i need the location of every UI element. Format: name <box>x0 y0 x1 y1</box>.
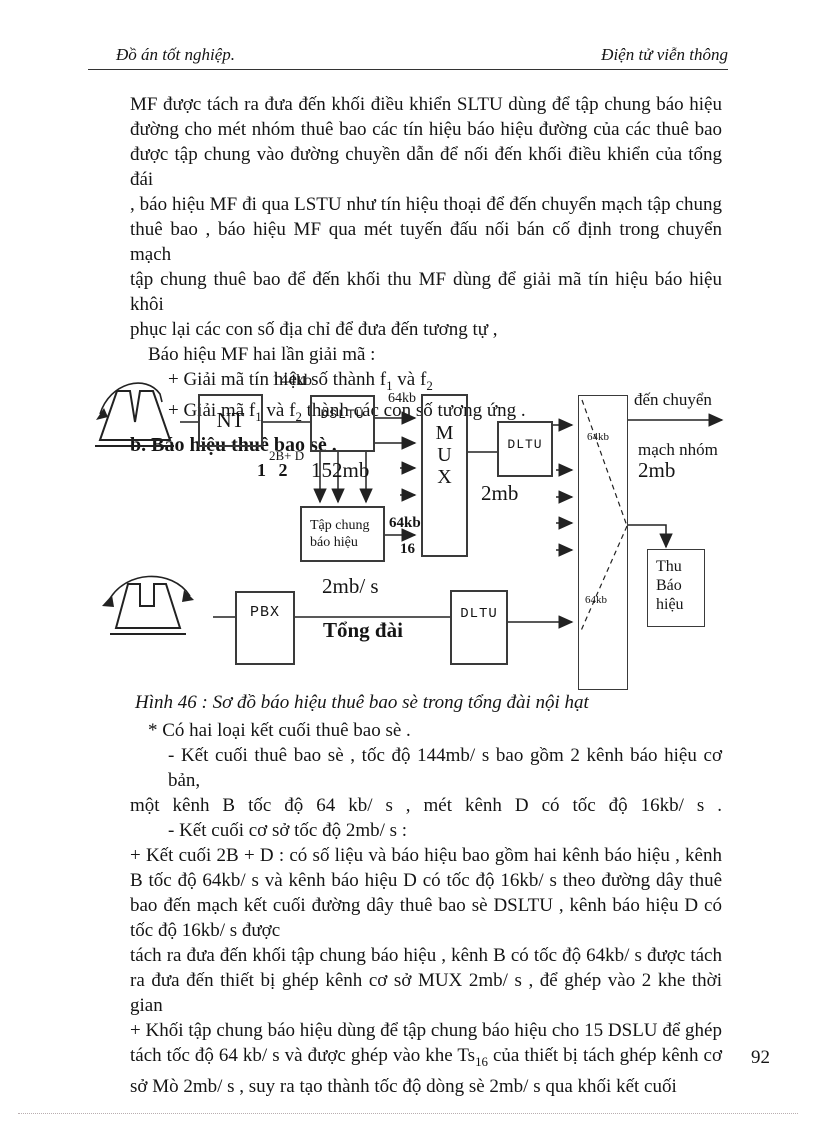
text-line: ra đưa đến thiết bị ghép kênh cơ sở MUX … <box>130 968 722 1018</box>
telephone-icon <box>94 378 186 464</box>
text-span: tách tốc độ 64 kb/ s và được ghép vào kh… <box>130 1045 475 1066</box>
rate-label-2mb-right: 2mb <box>638 458 675 483</box>
mux-box: M U X <box>421 394 468 557</box>
text-line: thuê bao , báo hiệu MF qua mét tuyến đấu… <box>130 217 722 267</box>
figure-caption: Hình 46 : Sơ đồ báo hiệu thuê bao sè tro… <box>135 691 589 715</box>
text-line: * Có hai loại kết cuối thuê bao sè . <box>130 718 722 743</box>
text-line-ts16: tách tốc độ 64 kb/ s và được ghép vào kh… <box>130 1043 722 1074</box>
text-line: bao đến mạch kết cuối đường dây thuê bao… <box>130 893 722 918</box>
telephone-icon <box>96 570 214 652</box>
page-number: 92 <box>751 1046 770 1070</box>
text-line: đường cho mét nhóm thuê bao các tín hiệu… <box>130 117 722 142</box>
tap-chung-label: Tập chung báo hiệu <box>310 518 369 550</box>
label-16: 16 <box>400 541 415 558</box>
list-intro: Báo hiệu MF hai lần giải mã : <box>130 342 722 367</box>
text-line: - Kết cuối thuê bao sè , tốc độ 144mb/ s… <box>130 743 722 793</box>
text-line: phục lại các con số địa chỉ để đưa đến t… <box>130 317 722 342</box>
figure-46-diagram: NT DSLTU M U X DLTU Tập chung báo hiệu T… <box>90 368 750 692</box>
rate-label-64kb-switch-bottom: 64kb <box>585 594 607 606</box>
text-line: , báo hiệu MF đi qua LSTU như tín hiệu t… <box>130 192 722 217</box>
rate-label-64kb-mid: 64kb <box>389 515 421 532</box>
rate-label-64kb-switch-top: 64kb <box>587 431 609 443</box>
pbx-label: PBX <box>250 604 280 621</box>
dltu-upper-label: DLTU <box>507 437 542 452</box>
dsltu-box: DSLTU <box>310 395 375 452</box>
text-line: B tốc độ 64kb/ s và kênh báo hiệu D có t… <box>130 868 722 893</box>
text-line: một kênh B tốc độ 64 kb/ s , mét kênh D … <box>130 793 722 818</box>
rate-label-144kb: 144kb <box>272 372 312 390</box>
mux-label: M U X <box>436 422 454 488</box>
header-right: Điện tử viễn thông <box>601 44 728 66</box>
tap-chung-box: Tập chung báo hiệu <box>300 506 385 562</box>
dltu-box-lower: DLTU <box>450 590 508 665</box>
text-line: tốc độ 16kb/ s được <box>130 918 722 943</box>
pbx-box: PBX <box>235 591 295 665</box>
text-span: của thiết bị tách ghép kênh cơ <box>488 1045 722 1066</box>
dltu-box-upper: DLTU <box>497 421 553 477</box>
rate-label-64kb-top: 64kb <box>388 391 416 407</box>
text-line: tách ra đưa đến khối tập chung báo hiệu … <box>130 943 722 968</box>
text-line: được tập chung vào đường chuyền dẫn để n… <box>130 142 722 192</box>
header-left: Đồ án tốt nghiệp. <box>116 44 235 66</box>
thu-bao-hieu-label: Thu Báo hiệu <box>656 558 684 613</box>
rate-label-2mb: 2mb <box>481 481 518 506</box>
nt-box: NT <box>198 394 263 447</box>
text-line: MF được tách ra đưa đến khối điều khiển … <box>130 92 722 117</box>
dltu-lower-label: DLTU <box>460 606 498 622</box>
label-1-2: 1 2 <box>257 460 292 481</box>
bottom-divider <box>18 1113 798 1114</box>
label-den-chuyen: đến chuyển <box>634 390 712 410</box>
rate-label-152mb: 152mb <box>311 458 369 483</box>
text-line: sở Mò 2mb/ s , suy ra tạo thành tốc độ d… <box>130 1074 722 1099</box>
subscript: 16 <box>475 1054 488 1069</box>
text-line: + Kết cuối 2B + D : có số liệu và báo hi… <box>130 843 722 868</box>
rate-label-2mbs: 2mb/ s <box>322 574 379 599</box>
text-line: - Kết cuối cơ sở tốc độ 2mb/ s : <box>130 818 722 843</box>
nt-label: NT <box>217 408 245 432</box>
dsltu-label: DSLTU <box>320 407 364 422</box>
text-line: + Khối tập chung báo hiệu dùng để tập ch… <box>130 1018 722 1043</box>
paragraph-ket-cuoi: * Có hai loại kết cuối thuê bao sè . - K… <box>130 718 722 1099</box>
label-mach-nhom: mạch nhóm <box>638 440 718 460</box>
page-header: Đồ án tốt nghiệp. Điện tử viễn thông <box>88 44 728 70</box>
label-tong-dai: Tổng đài <box>323 618 403 643</box>
thu-bao-hieu-box: Thu Báo hiệu <box>647 549 705 627</box>
text-line: tập chung thuê bao để đến khối thu MF dù… <box>130 267 722 317</box>
